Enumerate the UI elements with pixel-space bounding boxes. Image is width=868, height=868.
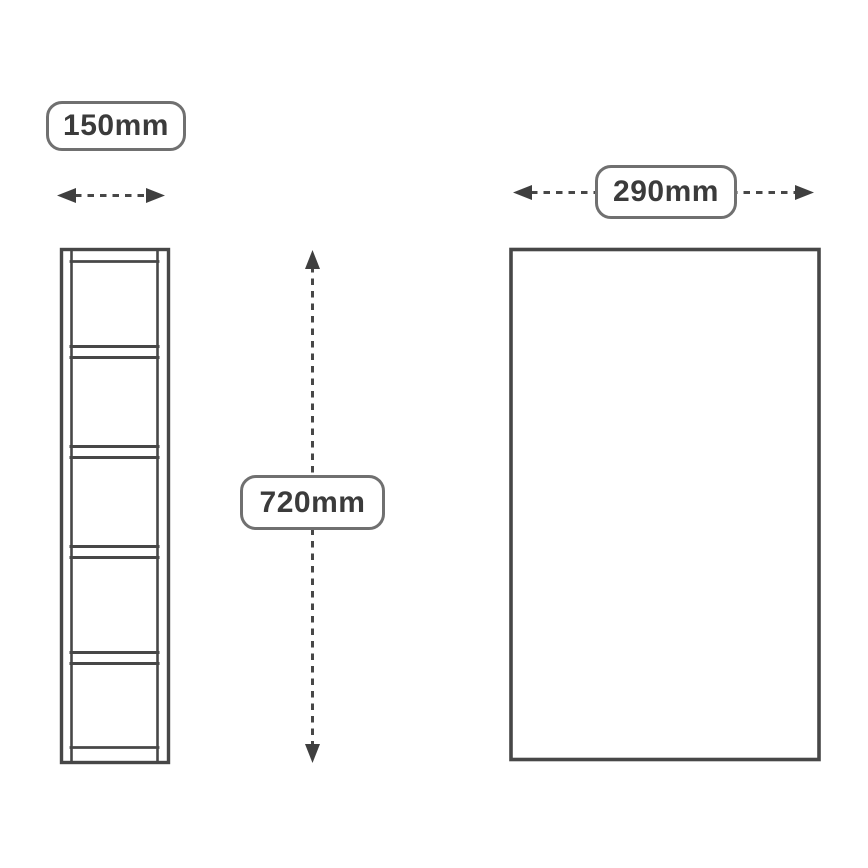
- arrowhead-up-icon: [305, 250, 320, 269]
- arrowhead-right-icon: [795, 185, 814, 200]
- front-width-label: 290mm: [595, 165, 737, 219]
- side-width-label: 150mm: [46, 101, 186, 151]
- side-width-arrow-icon: [57, 188, 165, 203]
- arrowhead-left-icon: [57, 188, 76, 203]
- front-view-outline: [511, 250, 819, 760]
- side-view-drawing: [62, 250, 169, 763]
- arrowhead-left-icon: [513, 185, 532, 200]
- arrowhead-right-icon: [146, 188, 165, 203]
- front-view-drawing: [511, 250, 819, 760]
- height-label: 720mm: [240, 475, 385, 530]
- arrowhead-down-icon: [305, 744, 320, 763]
- side-view-outline: [62, 250, 169, 763]
- dimension-diagram: 150mm 720mm 290mm: [0, 0, 868, 868]
